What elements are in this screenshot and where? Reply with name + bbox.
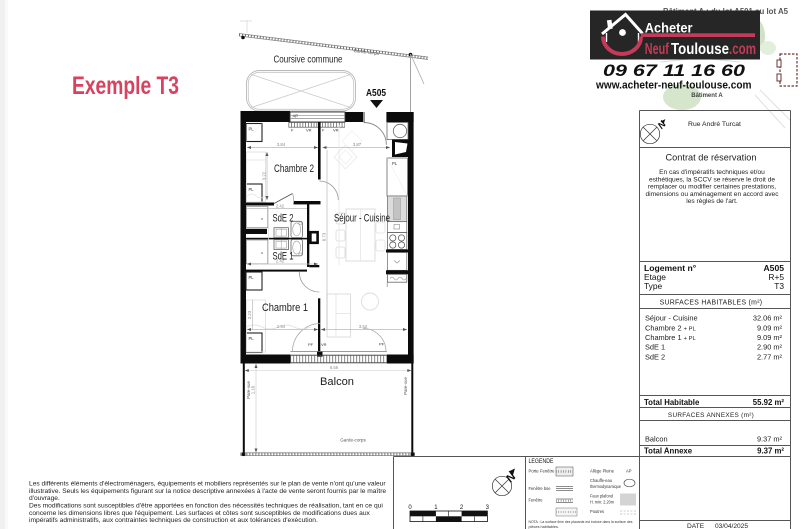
- svg-text:1: 1: [434, 505, 438, 511]
- svg-text:SURFACES ANNEXES (m²): SURFACES ANNEXES (m²): [668, 412, 754, 419]
- svg-text:Neuf: Neuf: [645, 41, 669, 58]
- svg-text:Garde-corps: Garde-corps: [340, 438, 366, 443]
- svg-text:Acheter: Acheter: [645, 19, 693, 35]
- svg-text:Garde-corps: Garde-corps: [353, 48, 380, 56]
- svg-text:SURFACES HABITABLES (m²): SURFACES HABITABLES (m²): [660, 300, 763, 307]
- svg-text:AP: AP: [293, 114, 299, 119]
- svg-text:Rue André Turcat: Rue André Turcat: [688, 121, 741, 128]
- svg-text:2.90 m²: 2.90 m²: [757, 343, 783, 352]
- svg-text:SdE 1: SdE 1: [273, 251, 294, 263]
- svg-text:Bâtiment A: Bâtiment A: [691, 93, 723, 99]
- svg-text:2: 2: [460, 505, 464, 511]
- svg-text:6.56: 6.56: [330, 365, 339, 370]
- svg-text:Total Habitable: Total Habitable: [644, 398, 700, 407]
- svg-text:2.42: 2.42: [276, 203, 285, 208]
- svg-text:03/04/2025: 03/04/2025: [715, 523, 748, 529]
- svg-text:Porte Fenêtre: Porte Fenêtre: [529, 469, 556, 474]
- svg-text:Les différents éléments d'élec: Les différents éléments d'électroménager…: [29, 481, 386, 488]
- svg-text:PL: PL: [249, 336, 255, 341]
- svg-text:PL: PL: [249, 275, 255, 280]
- svg-text:0: 0: [408, 505, 412, 511]
- svg-text:Type: Type: [644, 281, 662, 291]
- svg-text:3: 3: [486, 505, 490, 511]
- svg-text:Chambre 2 + PL: Chambre 2 + PL: [645, 323, 696, 332]
- svg-text:concerne les dimensions libres: concerne les dimensions libres que l'équ…: [29, 510, 371, 517]
- svg-text:H. min: 2.20m: H. min: 2.20m: [590, 500, 614, 505]
- svg-text:9.37 m²: 9.37 m²: [757, 446, 784, 455]
- svg-text:3.52: 3.52: [359, 324, 368, 329]
- svg-text:.com: .com: [729, 41, 756, 58]
- svg-text:55.92 m²: 55.92 m²: [753, 398, 785, 407]
- svg-text:illustrative. Seuls les équipe: illustrative. Seuls les équipements figu…: [29, 488, 386, 495]
- svg-text:1.10: 1.10: [251, 385, 256, 394]
- svg-text:3.22: 3.22: [262, 171, 267, 180]
- svg-text:T3: T3: [774, 281, 784, 291]
- svg-text:Fenêtre bse: Fenêtre bse: [529, 486, 552, 491]
- svg-text:VR: VR: [321, 342, 327, 347]
- svg-text:Des modifications sont suscept: Des modifications sont susceptibles d'êt…: [29, 503, 383, 510]
- svg-text:d'ouvrage.: d'ouvrage.: [29, 495, 60, 502]
- svg-text:Contrat de réservation: Contrat de réservation: [666, 153, 757, 163]
- svg-text:PL: PL: [249, 127, 255, 132]
- svg-text:Exemple T3: Exemple T3: [72, 72, 179, 100]
- svg-text:9.09 m²: 9.09 m²: [757, 323, 783, 332]
- svg-text:Fenêtre: Fenêtre: [529, 498, 544, 503]
- svg-text:remplacer ou modifier certaine: remplacer ou modifier certaines prestati…: [648, 184, 776, 191]
- svg-text:SdE 2: SdE 2: [645, 352, 665, 361]
- svg-text:9.09 m²: 9.09 m²: [757, 333, 783, 342]
- svg-text:Chauffe-eau: Chauffe-eau: [590, 478, 613, 483]
- svg-text:Total Annexe: Total Annexe: [644, 446, 693, 455]
- svg-text:LEGENDE: LEGENDE: [529, 458, 555, 465]
- svg-text:Pare-vue: Pare-vue: [403, 377, 408, 395]
- svg-text:thermodynamique: thermodynamique: [590, 484, 622, 489]
- svg-text:SdE 1: SdE 1: [645, 343, 665, 352]
- svg-text:Coursive commune: Coursive commune: [274, 55, 343, 66]
- svg-text:N: N: [656, 118, 670, 131]
- svg-text:PF: PF: [308, 342, 314, 347]
- svg-text:09 67 11 16 60: 09 67 11 16 60: [603, 61, 746, 80]
- svg-text:esthétiques, la SCCV se réserv: esthétiques, la SCCV se réserve le droit…: [649, 176, 775, 183]
- svg-text:F: F: [322, 128, 325, 133]
- svg-text:Poutres: Poutres: [590, 509, 604, 514]
- svg-text:SdE 2: SdE 2: [273, 213, 294, 225]
- svg-text:impératifs administratifs, aux: impératifs administratifs, aux contraint…: [29, 517, 318, 524]
- svg-text:Chambre 1 + PL: Chambre 1 + PL: [645, 333, 696, 342]
- svg-text:dimensions ou aménagement en a: dimensions ou aménagement en accord avec: [645, 191, 779, 198]
- svg-text:Allège Pleine: Allège Pleine: [590, 469, 615, 474]
- svg-text:Séjour - Cuisine: Séjour - Cuisine: [334, 213, 390, 225]
- svg-text:Faux plafond: Faux plafond: [590, 494, 614, 499]
- svg-text:AP: AP: [626, 469, 632, 474]
- svg-text:8.73: 8.73: [322, 232, 327, 241]
- svg-text:les règles de l'art.: les règles de l'art.: [686, 198, 738, 205]
- svg-text:PF: PF: [379, 342, 385, 347]
- svg-text:PL: PL: [249, 187, 255, 192]
- svg-text:NOTA : La surface finie des pl: NOTA : La surface finie des placards est…: [529, 520, 633, 524]
- svg-text:2.77 m²: 2.77 m²: [757, 352, 783, 361]
- svg-text:9.37 m²: 9.37 m²: [757, 434, 783, 443]
- svg-text:2.94: 2.94: [277, 324, 286, 329]
- svg-text:3.87: 3.87: [353, 142, 362, 147]
- svg-text:Balcon: Balcon: [320, 376, 354, 388]
- svg-text:Séjour - Cuisine: Séjour - Cuisine: [645, 314, 698, 323]
- svg-text:Toulouse: Toulouse: [671, 41, 729, 58]
- svg-text:A505: A505: [366, 87, 386, 99]
- svg-text:F: F: [291, 128, 294, 133]
- svg-text:En cas d'impératifs techniques: En cas d'impératifs techniques et/ou: [659, 169, 765, 176]
- svg-text:3.23: 3.23: [247, 310, 252, 319]
- svg-text:Balcon: Balcon: [645, 434, 668, 443]
- svg-text:Chambre 1: Chambre 1: [262, 302, 308, 314]
- svg-text:VR: VR: [306, 128, 312, 133]
- svg-text:32.06 m²: 32.06 m²: [753, 314, 783, 323]
- svg-text:3.84: 3.84: [277, 142, 286, 147]
- svg-text:www.acheter-neuf-toulouse.com: www.acheter-neuf-toulouse.com: [595, 80, 752, 92]
- svg-text:VR: VR: [333, 128, 339, 133]
- svg-text:DATE: DATE: [687, 523, 705, 529]
- svg-text:PL: PL: [392, 161, 398, 166]
- svg-text:pièces habitables.: pièces habitables.: [529, 525, 559, 529]
- svg-text:Chambre 2: Chambre 2: [274, 163, 314, 175]
